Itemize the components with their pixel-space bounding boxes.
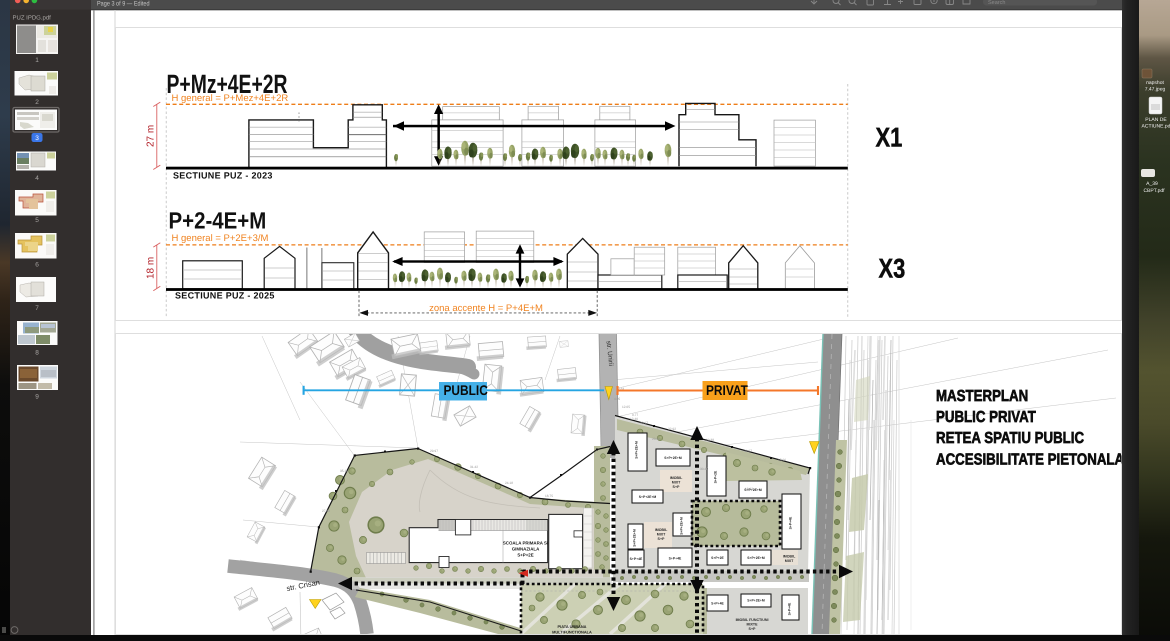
svg-text:18.75: 18.75 [545, 494, 553, 498]
svg-text:P+2-4E+M: P+2-4E+M [169, 208, 267, 234]
svg-text:RETEA SPATIU PUBLIC: RETEA SPATIU PUBLIC [936, 430, 1084, 447]
svg-text:S+P+4E: S+P+4E [788, 602, 792, 615]
svg-text:napshot: napshot [1146, 80, 1164, 86]
svg-text:PRIVAT: PRIVAT [706, 382, 748, 398]
svg-text:SECTIUNE PUZ - 2025: SECTIUNE PUZ - 2025 [175, 291, 275, 301]
svg-text:zona accente H = P+4E+M: zona accente H = P+4E+M [429, 303, 543, 314]
svg-text:MIXTE: MIXTE [747, 623, 759, 627]
svg-text:S+P+2E+M: S+P+2E+M [633, 529, 637, 547]
svg-text:18 m: 18 m [146, 257, 157, 279]
svg-text:S+P: S+P [658, 537, 665, 541]
svg-text:MASTERPLAN: MASTERPLAN [936, 388, 1028, 405]
svg-text:PLAN DE: PLAN DE [1145, 117, 1167, 123]
svg-text:21.07: 21.07 [744, 449, 752, 453]
svg-text:Search: Search [988, 0, 1005, 6]
svg-text:S+P+2E: S+P+2E [517, 553, 533, 558]
svg-text:27 m: 27 m [146, 125, 157, 147]
svg-text:12.05: 12.05 [622, 405, 630, 409]
svg-text:6: 6 [35, 262, 39, 269]
svg-text:A_39: A_39 [1146, 181, 1158, 187]
svg-text:30.40: 30.40 [700, 467, 708, 471]
svg-text:2: 2 [35, 99, 39, 106]
svg-text:9: 9 [35, 394, 39, 401]
svg-text:4: 4 [35, 175, 39, 182]
svg-text:S+P+4E: S+P+4E [711, 602, 724, 606]
svg-text:MIXT: MIXT [657, 533, 666, 537]
svg-text:27.80: 27.80 [322, 509, 330, 513]
svg-text:Page 3 of 9 — Edited: Page 3 of 9 — Edited [97, 1, 150, 8]
svg-text:1: 1 [35, 57, 39, 64]
svg-text:GIMNAZIALA: GIMNAZIALA [512, 547, 540, 552]
svg-text:IMOBIL: IMOBIL [670, 476, 683, 480]
svg-text:CBPT.pdf: CBPT.pdf [1143, 188, 1165, 194]
svg-text:S+P+2E: S+P+2E [711, 556, 724, 560]
svg-text:12.40: 12.40 [630, 417, 638, 421]
svg-text:S+P+2E+M: S+P+2E+M [664, 456, 682, 460]
svg-text:S+P: S+P [749, 627, 756, 631]
svg-text:MULTIFUNCTIONALA: MULTIFUNCTIONALA [552, 630, 592, 635]
svg-text:S+P: S+P [673, 485, 680, 489]
svg-text:S+P+2E+M: S+P+2E+M [747, 556, 765, 560]
svg-text:15.66: 15.66 [778, 458, 786, 462]
svg-text:7: 7 [35, 305, 39, 312]
svg-text:SECTIUNE PUZ - 2023: SECTIUNE PUZ - 2023 [173, 170, 273, 180]
svg-text:MIXT: MIXT [785, 559, 794, 563]
svg-text:35.11: 35.11 [340, 469, 348, 473]
svg-text:PUZ IPDG.pdf: PUZ IPDG.pdf [13, 15, 52, 22]
svg-text:ACCESIBILITATE PIETONALA: ACCESIBILITATE PIETONALA [936, 452, 1125, 469]
svg-text:30.17: 30.17 [640, 421, 648, 425]
svg-text:IMOBIL FUNCTIUNI: IMOBIL FUNCTIUNI [736, 618, 769, 622]
svg-text:S+P+2E+M: S+P+2E+M [639, 495, 657, 499]
svg-text:5: 5 [35, 217, 39, 224]
svg-text:20.94: 20.94 [652, 437, 660, 441]
svg-text:S+P+4E: S+P+4E [789, 516, 793, 529]
svg-text:29.97: 29.97 [430, 449, 438, 453]
svg-text:22.92: 22.92 [668, 427, 676, 431]
svg-text:S+P+2E+M: S+P+2E+M [747, 599, 765, 603]
svg-text:31.42: 31.42 [470, 465, 478, 469]
svg-text:ACTIUNE.pd: ACTIUNE.pd [1142, 124, 1170, 130]
svg-text:X3: X3 [879, 254, 906, 284]
svg-text:IMOBIL: IMOBIL [783, 555, 796, 559]
svg-text:9.77: 9.77 [632, 413, 638, 417]
svg-text:4.05: 4.05 [614, 397, 620, 401]
svg-text:24.18: 24.18 [505, 481, 513, 485]
svg-text:IMOBIL: IMOBIL [655, 528, 668, 532]
svg-text:PUBLIC: PUBLIC [444, 382, 488, 398]
svg-text:7.47.jpeg: 7.47.jpeg [1145, 87, 1166, 93]
svg-text:SCOALA PRIMARA SI: SCOALA PRIMARA SI [503, 541, 548, 546]
svg-text:18.03: 18.03 [745, 487, 753, 491]
svg-text:H general = P+Mez+4E+2R: H general = P+Mez+4E+2R [172, 93, 289, 104]
svg-text:MIXT: MIXT [672, 481, 681, 485]
svg-text:X1: X1 [876, 123, 903, 153]
svg-text:H general = P+2E+3/M: H general = P+2E+3/M [172, 233, 269, 244]
svg-text:19.38: 19.38 [706, 438, 714, 442]
svg-text:S+P+4E: S+P+4E [669, 557, 682, 561]
svg-text:PIATA URBANA: PIATA URBANA [558, 624, 587, 629]
svg-text:S+P+2E: S+P+2E [714, 470, 718, 483]
svg-text:S+P+4E: S+P+4E [630, 557, 643, 561]
svg-text:3: 3 [35, 135, 39, 142]
svg-text:S+P+2E+M: S+P+2E+M [635, 441, 639, 459]
svg-text:S+P+2E+M: S+P+2E+M [680, 517, 684, 535]
svg-text:PUBLIC PRIVAT: PUBLIC PRIVAT [936, 409, 1036, 426]
svg-text:8: 8 [35, 350, 39, 357]
